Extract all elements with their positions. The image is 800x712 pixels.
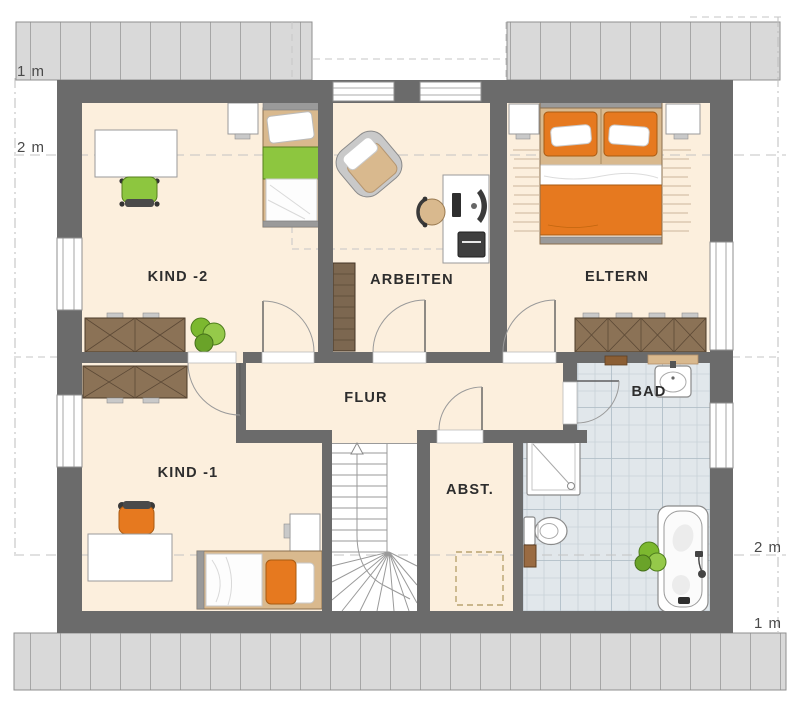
- window-kind1-left: [57, 395, 82, 467]
- sink-faucet: [670, 361, 676, 368]
- room-label-kind2: KIND -2: [148, 269, 209, 285]
- bed-double: [540, 101, 662, 244]
- nightstand-right: [666, 104, 700, 134]
- window-dormer-left: [333, 82, 394, 101]
- bed-single: [263, 101, 320, 227]
- window-kind2-left: [57, 238, 82, 310]
- desk-chair: [119, 177, 159, 207]
- bed-single: [197, 551, 322, 609]
- room-label-bad: BAD: [631, 384, 666, 400]
- floor-stairwell: [332, 443, 417, 611]
- nightstand: [290, 514, 320, 551]
- bookshelf: [333, 263, 355, 351]
- shower: [527, 438, 580, 495]
- bath-wall-shelf-dark: [605, 356, 627, 365]
- desk: [95, 130, 177, 177]
- measure-right-1m: 1 m: [754, 615, 782, 632]
- toilet: [524, 517, 567, 545]
- room-label-arbeiten: ARBEITEN: [370, 272, 454, 288]
- measure-left-1m: 1 m: [17, 63, 45, 80]
- nightstand-left: [509, 104, 539, 134]
- bath-shelf: [524, 545, 536, 567]
- desk: [88, 534, 172, 581]
- room-label-eltern: ELTERN: [585, 269, 649, 285]
- wardrobe: [575, 313, 706, 352]
- floor-plan-page: KIND -2 ARBEITEN ELTERN FLUR KIND -1 ABS…: [0, 0, 800, 712]
- measure-left-2m: 2 m: [17, 139, 45, 156]
- window-eltern-right: [710, 242, 733, 350]
- roof-overhang-top-left: [16, 22, 312, 80]
- roof-overhang-bottom: [14, 633, 786, 690]
- floor-plan-svg: KIND -2 ARBEITEN ELTERN FLUR KIND -1 ABS…: [0, 0, 800, 712]
- measure-right-2m: 2 m: [754, 539, 782, 556]
- window-dormer-right: [420, 82, 481, 101]
- room-label-flur: FLUR: [344, 390, 387, 406]
- wardrobe: [83, 366, 187, 403]
- room-label-abst: ABST.: [446, 482, 494, 498]
- nightstand: [228, 103, 258, 134]
- window-bad-right: [710, 403, 733, 468]
- room-label-kind1: KIND -1: [158, 465, 219, 481]
- wardrobe: [85, 313, 185, 352]
- roof-overhang-top-right: [507, 22, 780, 80]
